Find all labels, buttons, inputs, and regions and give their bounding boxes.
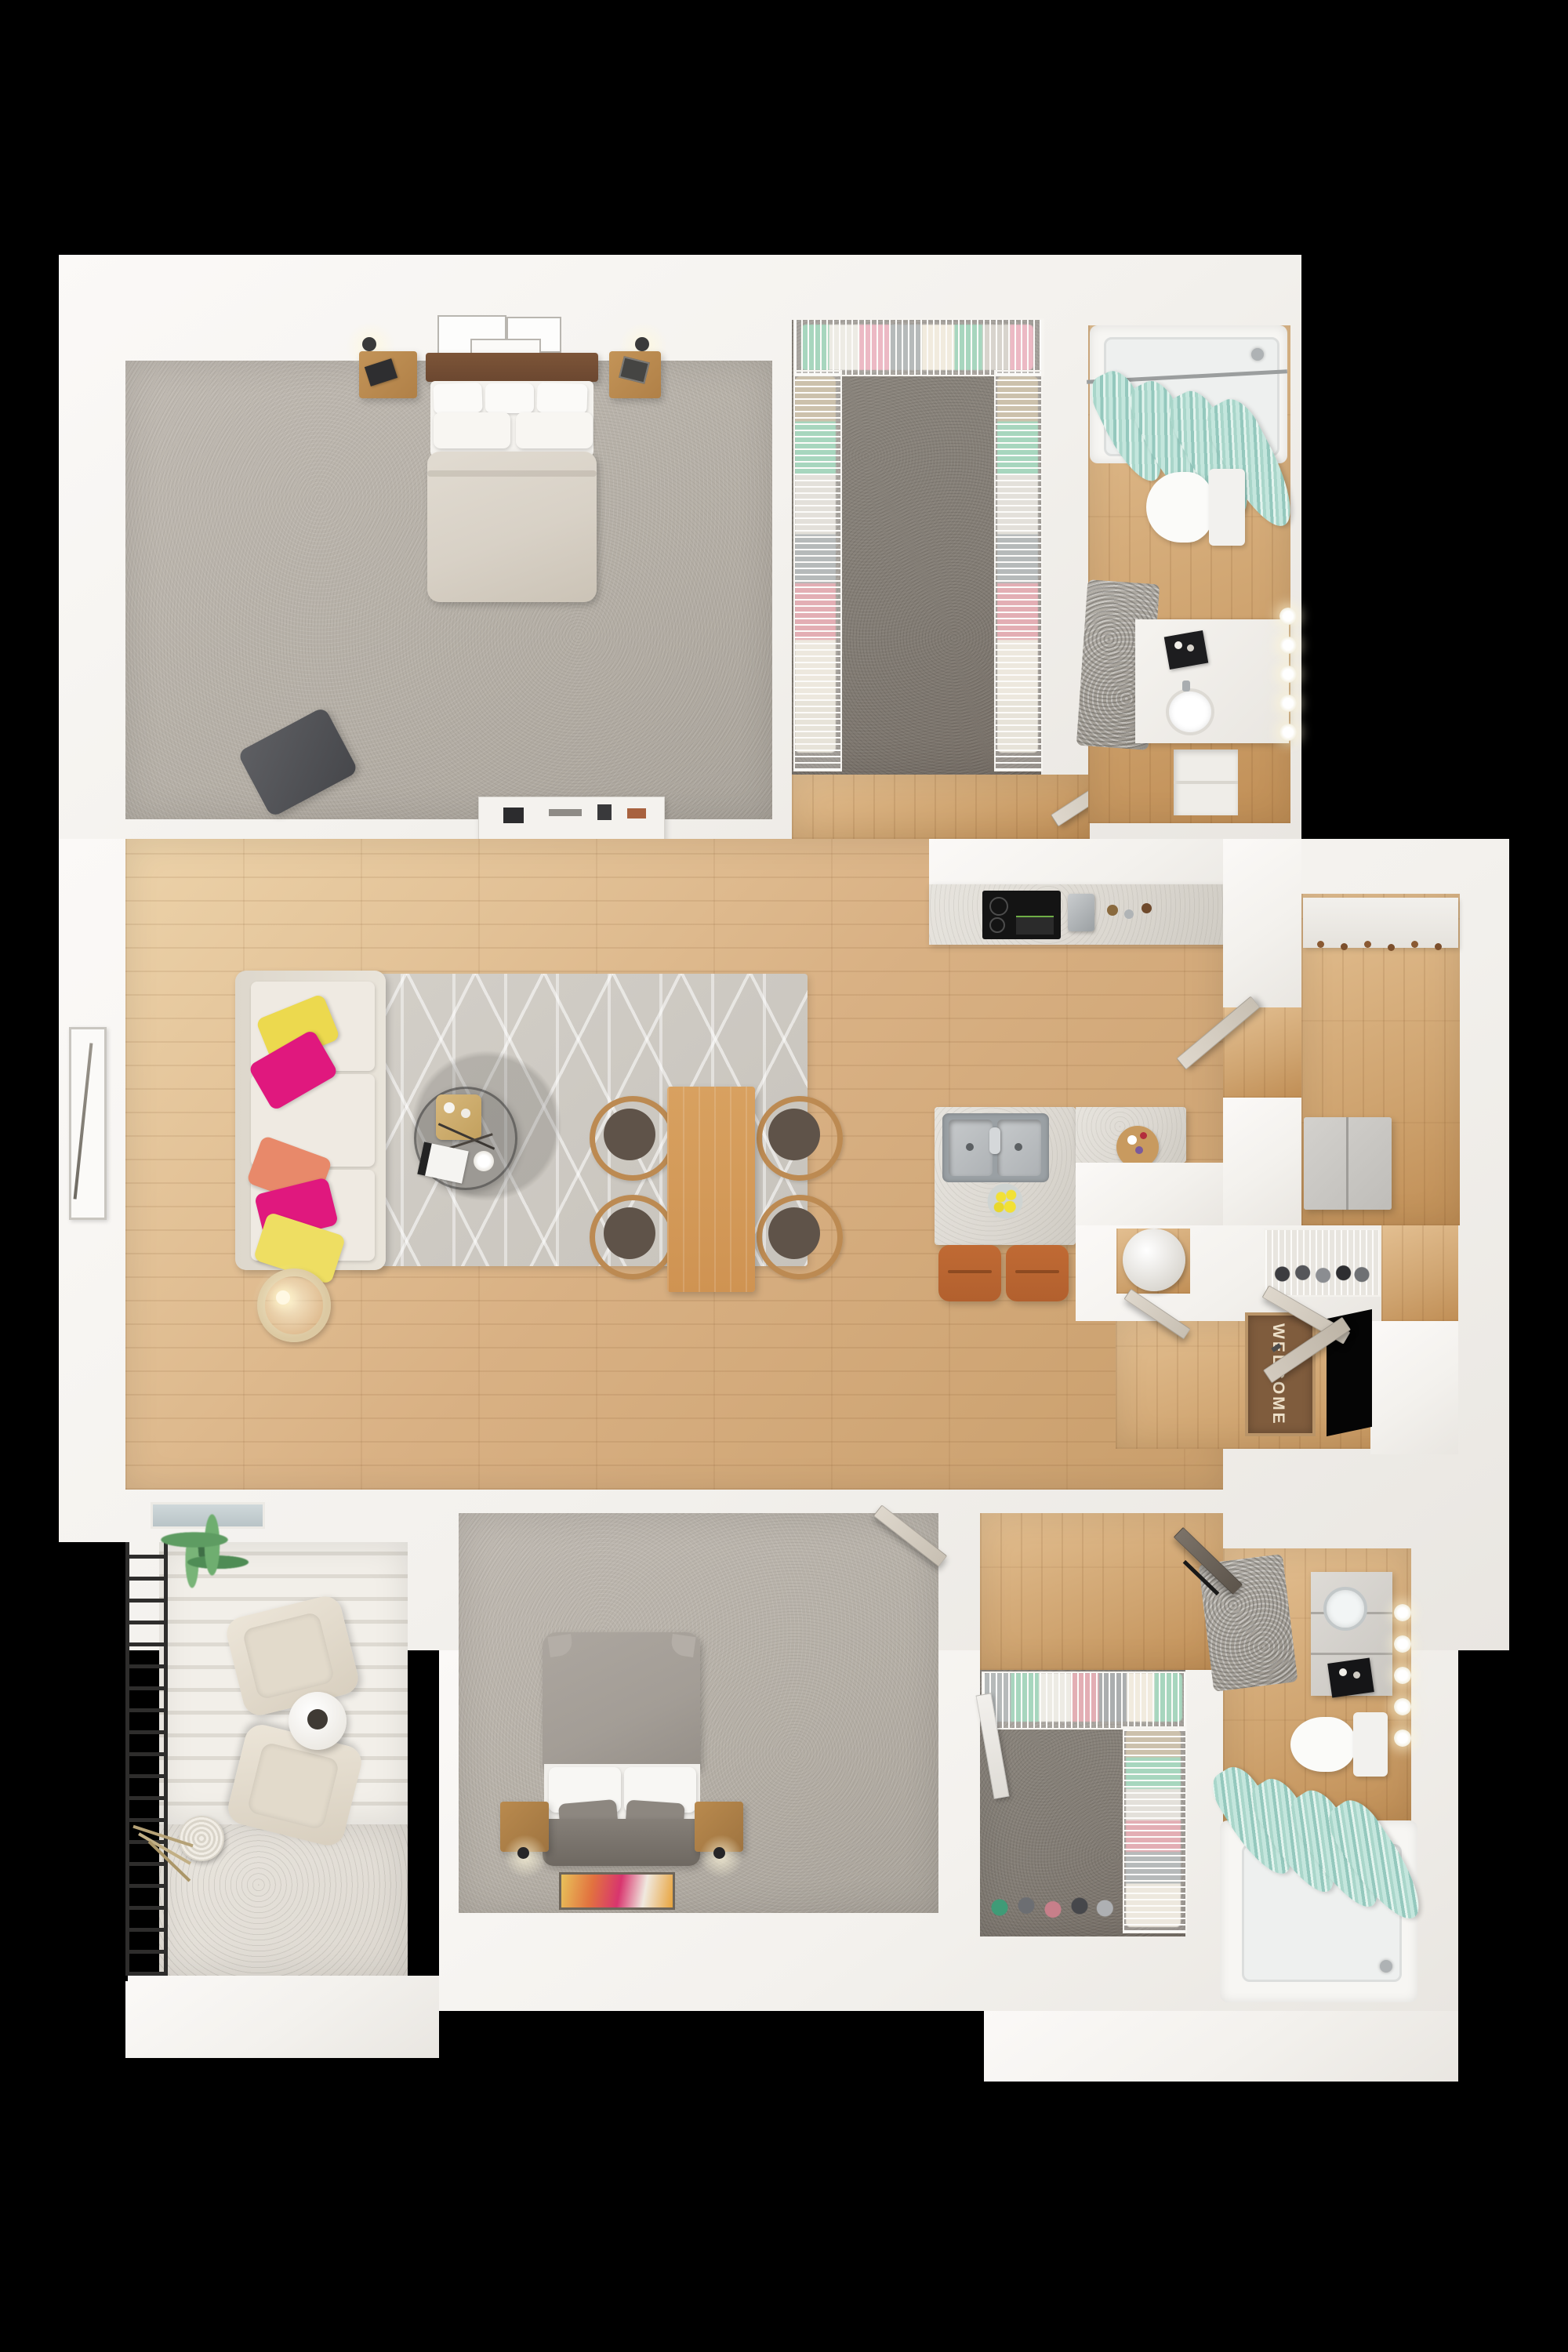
- bar-stool-seam: [948, 1270, 992, 1273]
- floor-lamp-bulb: [276, 1290, 290, 1305]
- bar-stool: [938, 1245, 1001, 1301]
- dresser-decor: [549, 809, 582, 816]
- counter-jar: [1124, 909, 1134, 919]
- hanging-rail-hook: [1388, 944, 1395, 951]
- bar-stool: [1006, 1245, 1069, 1301]
- hanging-rail-hook: [1341, 943, 1348, 950]
- outside-void-left-of-railing: [59, 1542, 128, 1981]
- tray-cup: [444, 1102, 455, 1113]
- mirror-bulb: [1279, 695, 1297, 712]
- bed-pillow: [433, 383, 482, 414]
- table-lamp: [362, 337, 376, 351]
- tray-bottle: [1187, 644, 1194, 652]
- mirror-bulb: [1279, 724, 1297, 741]
- closet2-shoes: [986, 1888, 1120, 1927]
- side-table-tray: [307, 1709, 328, 1730]
- tray-bottle: [1174, 641, 1182, 649]
- mirror-bulb: [1394, 1635, 1411, 1653]
- hall-connector-floor: [1381, 1225, 1458, 1321]
- table-lamp: [713, 1847, 725, 1859]
- linen-niche-shelf: [1174, 781, 1238, 784]
- hanging-rail-hook: [1364, 941, 1371, 948]
- island-faucet: [989, 1127, 1000, 1154]
- tray-bottle: [1339, 1668, 1347, 1676]
- dining-chair-seat: [768, 1207, 820, 1259]
- hall1-floor: [792, 775, 1090, 839]
- cooktop-burner: [989, 917, 1005, 933]
- island-back-wall: [1076, 1163, 1223, 1225]
- mirror-bulb: [1394, 1667, 1411, 1684]
- hanging-rail-hook: [1317, 941, 1324, 948]
- balcony-railing: [125, 1542, 168, 1976]
- mirror-bulb: [1394, 1730, 1411, 1747]
- kitchen-right-wall-upper: [1223, 839, 1301, 1007]
- table-flowers: [474, 1151, 494, 1171]
- bed-pillow: [516, 412, 593, 448]
- bar-stool-seam: [1015, 1270, 1059, 1273]
- mirror-bulb: [1279, 608, 1297, 625]
- coffee-maker: [1068, 894, 1094, 931]
- entry-right-wall: [1370, 1321, 1458, 1454]
- counter-jar: [1142, 903, 1152, 913]
- dining-table: [667, 1087, 755, 1292]
- bedroom1-bed-headboard: [426, 353, 598, 382]
- floor-lamp-glow: [252, 1264, 328, 1339]
- hanging-rail-hook: [1435, 943, 1442, 950]
- walls-bottom-right-block: [984, 2011, 1458, 2082]
- mirror-bulb: [1394, 1698, 1411, 1715]
- sink-faucet: [1182, 681, 1190, 691]
- closet1-wire-shelf-left: [793, 370, 842, 771]
- bed-pillow: [536, 383, 587, 414]
- dresser-decor: [597, 804, 612, 820]
- serving-board-items: [1127, 1135, 1137, 1145]
- bedroom2-headboard: [543, 1819, 700, 1866]
- dresser-decor: [627, 808, 646, 818]
- bathroom2-toilet-bowl: [1290, 1717, 1356, 1772]
- cooktop-controls: [1016, 916, 1054, 935]
- sink-drain: [966, 1143, 974, 1151]
- bed-pillow: [434, 412, 510, 448]
- vanity-vessel-sink: [1323, 1587, 1367, 1631]
- sink-drain: [1014, 1143, 1022, 1151]
- closet1-wire-shelf-top: [793, 318, 1044, 376]
- bathroom2-toilet-tank: [1353, 1712, 1388, 1777]
- bathroom1-vanity: [1135, 619, 1289, 743]
- vanity-tray: [1164, 630, 1209, 670]
- water-heater: [1123, 1229, 1185, 1291]
- mirror-bulb: [1394, 1604, 1411, 1621]
- serving-board-items: [1140, 1132, 1147, 1139]
- island-flowers: [985, 1181, 1025, 1221]
- bathroom1-toilet-bowl: [1146, 472, 1215, 543]
- closet1-wire-shelf-right: [994, 370, 1043, 771]
- floor-plan-stage: WELCOME: [0, 0, 1568, 2352]
- hanging-rail-hook: [1411, 941, 1418, 948]
- table-lamp: [517, 1847, 529, 1859]
- dining-chair-seat: [768, 1109, 820, 1160]
- vanity-drawer-line: [1311, 1653, 1392, 1655]
- balcony-vase: [179, 1816, 224, 1861]
- tray-cup: [461, 1109, 470, 1118]
- dresser-decor: [503, 808, 524, 823]
- closet2-wire-shelf-right: [1123, 1726, 1187, 1933]
- bathtub-faucet: [1380, 1960, 1392, 1973]
- vanity-sink: [1166, 688, 1214, 735]
- counter-jar: [1107, 905, 1118, 916]
- cooktop-burner: [989, 897, 1008, 916]
- mirror-bulb: [1279, 637, 1297, 654]
- hallway-counter: [1303, 898, 1458, 948]
- mirror-bulb: [1279, 666, 1297, 683]
- bedroom2-wall-art: [559, 1872, 675, 1910]
- bathroom1-toilet-tank: [1209, 469, 1245, 546]
- bed-pillow: [485, 383, 534, 413]
- kitchen-right-wall-lower: [1223, 1098, 1301, 1225]
- dining-chair-seat: [604, 1109, 655, 1160]
- refrigerator-door-split: [1346, 1117, 1348, 1210]
- serving-board-items: [1135, 1146, 1143, 1154]
- closet2-wire-shelf-top: [982, 1671, 1187, 1730]
- shower-head: [1251, 348, 1264, 361]
- vanity-tray: [1327, 1657, 1374, 1697]
- dining-chair-seat: [604, 1207, 655, 1259]
- walls-balcony-bottom: [125, 1976, 439, 2058]
- table-lamp: [635, 337, 649, 351]
- duvet-fold: [427, 470, 597, 477]
- coat-closet-shoes: [1270, 1261, 1372, 1287]
- tray-bottle: [1353, 1671, 1360, 1679]
- palm-plant: [147, 1499, 265, 1601]
